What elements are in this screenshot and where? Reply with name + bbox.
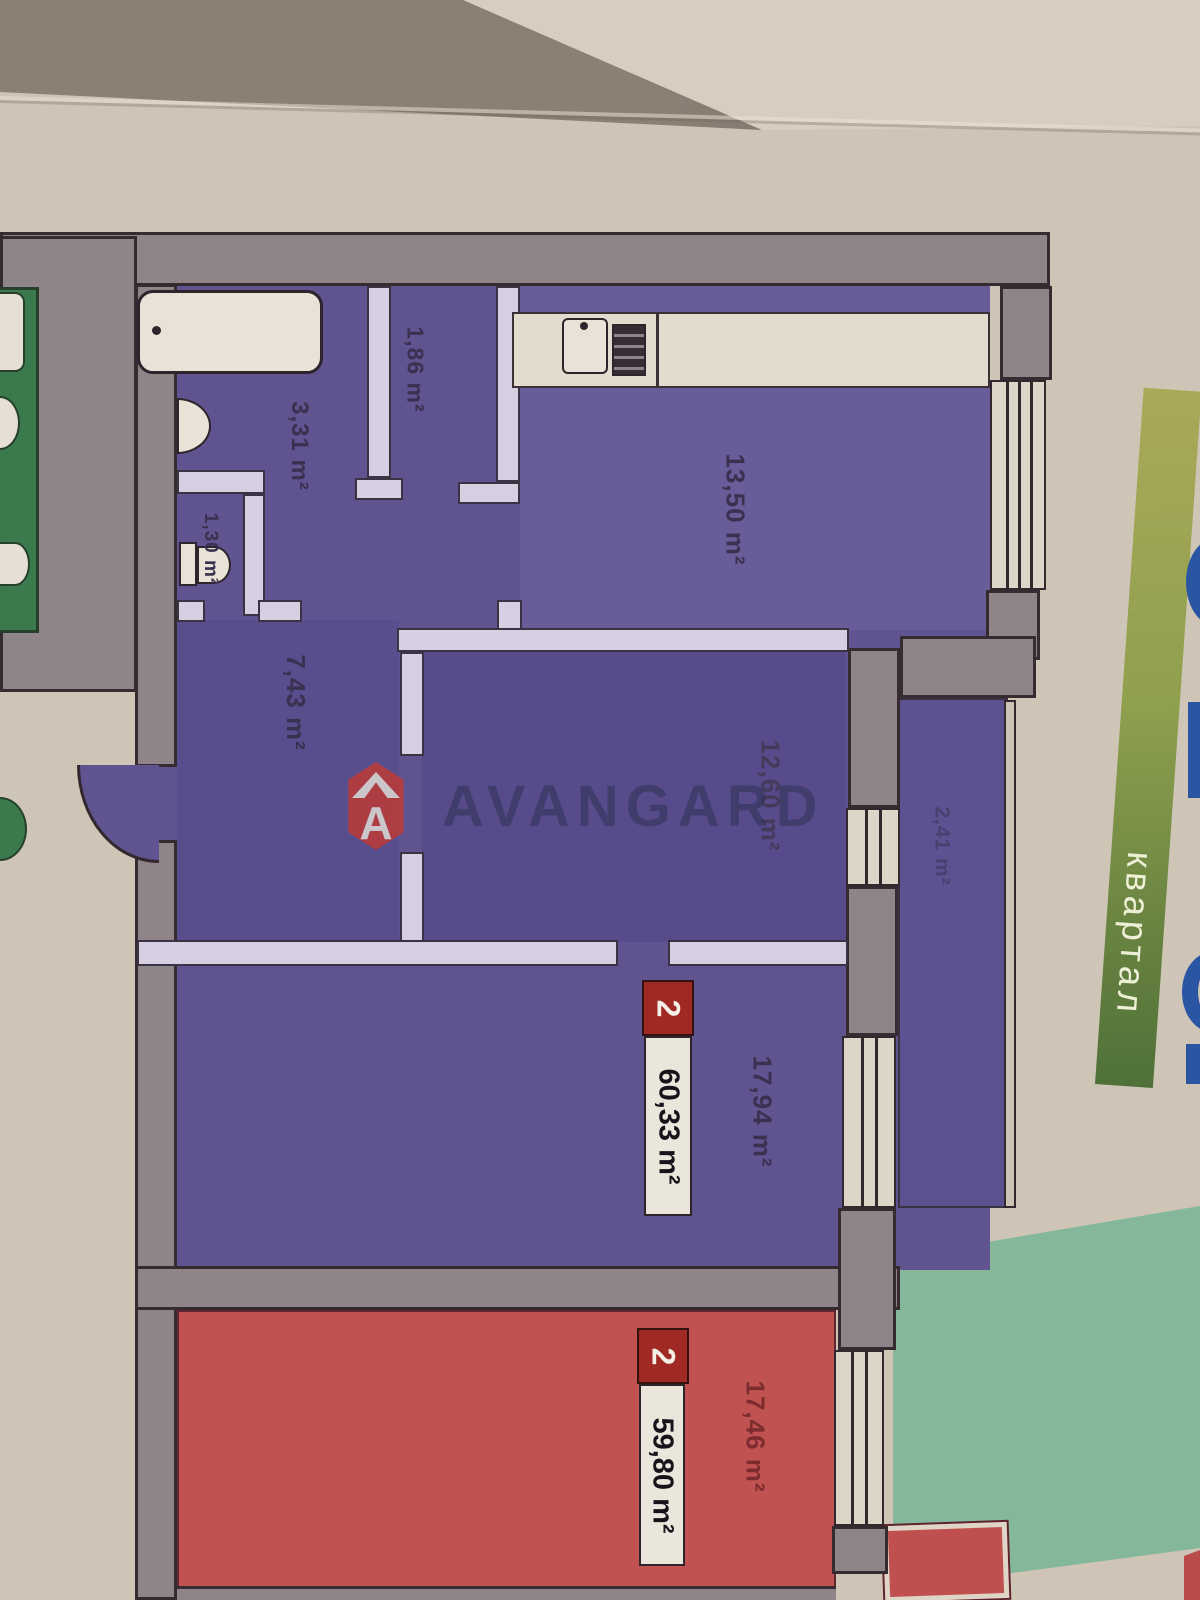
label-wc-area: 1,30 m² — [195, 496, 225, 601]
kitchen-window — [990, 380, 1046, 590]
green-door-swing — [0, 797, 27, 861]
bath-bottom-wall-b — [258, 600, 302, 622]
watermark: A AVANGARD — [346, 758, 886, 854]
label-red-room-area: 17,46 m² — [736, 1364, 774, 1509]
label-bathroom-area: 3,31 m² — [282, 386, 316, 506]
avangard-logo-icon: A — [346, 762, 406, 850]
kitchen-hall-wall — [397, 628, 849, 652]
bath-bottom-wall-a — [177, 600, 205, 622]
window-pier-2 — [846, 886, 898, 1036]
living-room-top-wall-a — [137, 940, 618, 966]
red-apartment-badge-number: 2 — [637, 1328, 689, 1384]
cropped-blue-letter-bar-2 — [1186, 1044, 1200, 1084]
living-room-window — [842, 1036, 896, 1208]
wc-top-wall — [177, 470, 265, 494]
loggia-floor — [898, 698, 1008, 1208]
cropped-blue-letter-ring-2 — [1182, 952, 1200, 1032]
living-room-top-wall-b — [668, 940, 848, 966]
counter-divider-line — [656, 314, 659, 386]
red-room-bottom-wall — [177, 1586, 836, 1600]
window-pier-3 — [838, 1208, 896, 1350]
entrance-door-swing — [77, 765, 159, 863]
bathtub-drain-icon — [152, 326, 161, 335]
red-apartment-total-area: 59,80 m² — [639, 1384, 685, 1566]
green-toilet-icon — [0, 542, 30, 586]
bath-storage-wall — [367, 286, 391, 478]
kitchen-stove-icon — [612, 324, 646, 376]
bathtub-icon — [137, 290, 323, 374]
red-balcony — [883, 1522, 1010, 1600]
purple-apartment-badge-number: 2 — [642, 980, 694, 1036]
watermark-brand-text: AVANGARD — [442, 773, 825, 840]
logo-letter: A — [346, 800, 406, 846]
loggia-railing — [1004, 700, 1016, 1208]
label-living-room-area: 17,94 m² — [744, 1034, 780, 1189]
storage-kitchen-wall-foot — [458, 482, 520, 504]
kitchen-faucet-icon — [580, 322, 588, 330]
right-wall-upper — [1000, 286, 1052, 380]
kitchen-door-stub — [497, 600, 522, 630]
wc-side-wall — [243, 494, 265, 616]
label-storage-area: 1,86 m² — [398, 302, 432, 437]
top-outer-wall — [0, 232, 1050, 286]
purple-apartment-total-area: 60,33 m² — [644, 1036, 692, 1216]
kvartal-banner-label: квартал — [1108, 850, 1161, 1018]
wall-corner-step — [900, 636, 1036, 698]
inter-apartment-wall — [135, 1266, 900, 1310]
label-hall-area: 7,43 m² — [276, 645, 314, 760]
bath-storage-wall-foot — [355, 478, 403, 500]
label-loggia-area: 2,41 m² — [926, 786, 958, 906]
green-bathtub-icon — [0, 292, 25, 372]
bedroom-left-wall-b — [400, 852, 424, 944]
red-room-window — [834, 1350, 884, 1526]
window-pier-4 — [832, 1526, 888, 1574]
brochure-photo: 13,50 m² 3,31 m² 1,86 m² 1,30 m² 7,43 m²… — [0, 0, 1200, 1600]
bedroom-left-wall-a — [400, 652, 424, 756]
cropped-blue-letter-bar-1 — [1188, 702, 1200, 798]
logo-chevron-icon — [352, 772, 400, 798]
label-kitchen-area: 13,50 m² — [716, 424, 754, 594]
